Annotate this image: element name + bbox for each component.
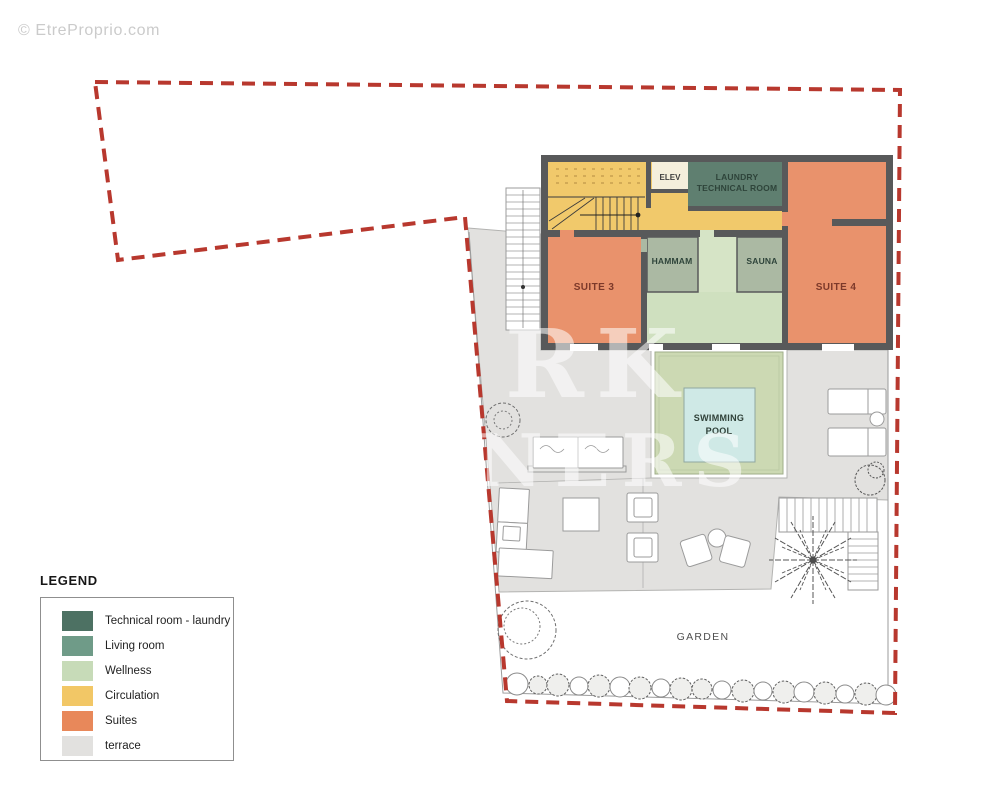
- garden-stairs: [779, 498, 878, 590]
- garden-bush: [498, 601, 556, 659]
- hedge-row: [506, 673, 896, 705]
- legend-row: Circulation: [62, 686, 233, 706]
- legend-label: Technical room - laundry: [105, 615, 230, 628]
- legend-swatch-living-room: [62, 636, 93, 656]
- garden-label: GARDEN: [677, 631, 730, 643]
- legend-title: LEGEND: [40, 574, 234, 587]
- elev-label: ELEV: [660, 173, 682, 182]
- legend-box: Technical room - laundry Living room Wel…: [40, 597, 234, 761]
- laundry-label-line2: TECHNICAL ROOM: [697, 183, 778, 193]
- legend-label: Living room: [105, 640, 164, 653]
- legend-swatch-terrace: [62, 736, 93, 756]
- site-credit-watermark: © EtreProprio.com: [18, 22, 160, 40]
- legend-row: Technical room - laundry: [62, 611, 233, 631]
- suite3-label: SUITE 3: [574, 282, 615, 293]
- legend-swatch-technical-room: [62, 611, 93, 631]
- sauna-label: SAUNA: [746, 256, 777, 266]
- legend-label: Wellness: [105, 665, 151, 678]
- legend-row: Living room: [62, 636, 233, 656]
- watermark-line2: NERS: [477, 418, 758, 503]
- hammam-label: HAMMAM: [652, 256, 693, 266]
- legend-row: Wellness: [62, 661, 233, 681]
- legend-label: Circulation: [105, 690, 159, 703]
- legend-row: terrace: [62, 736, 233, 756]
- suite4-label: SUITE 4: [816, 282, 857, 293]
- watermark-line1: RK: [505, 309, 691, 420]
- legend: LEGEND Technical room - laundry Living r…: [40, 574, 234, 761]
- floorplan-page: { "site_credit": "© EtreProprio.com", "a…: [0, 0, 982, 800]
- legend-label: terrace: [105, 740, 141, 753]
- legend-swatch-wellness: [62, 661, 93, 681]
- legend-swatch-suites: [62, 711, 93, 731]
- laundry-label-line1: LAUNDRY: [716, 172, 759, 182]
- legend-label: Suites: [105, 715, 137, 728]
- legend-swatch-circulation: [62, 686, 93, 706]
- room-suite4: [787, 162, 886, 343]
- wellness-corridor: [698, 237, 737, 292]
- legend-row: Suites: [62, 711, 233, 731]
